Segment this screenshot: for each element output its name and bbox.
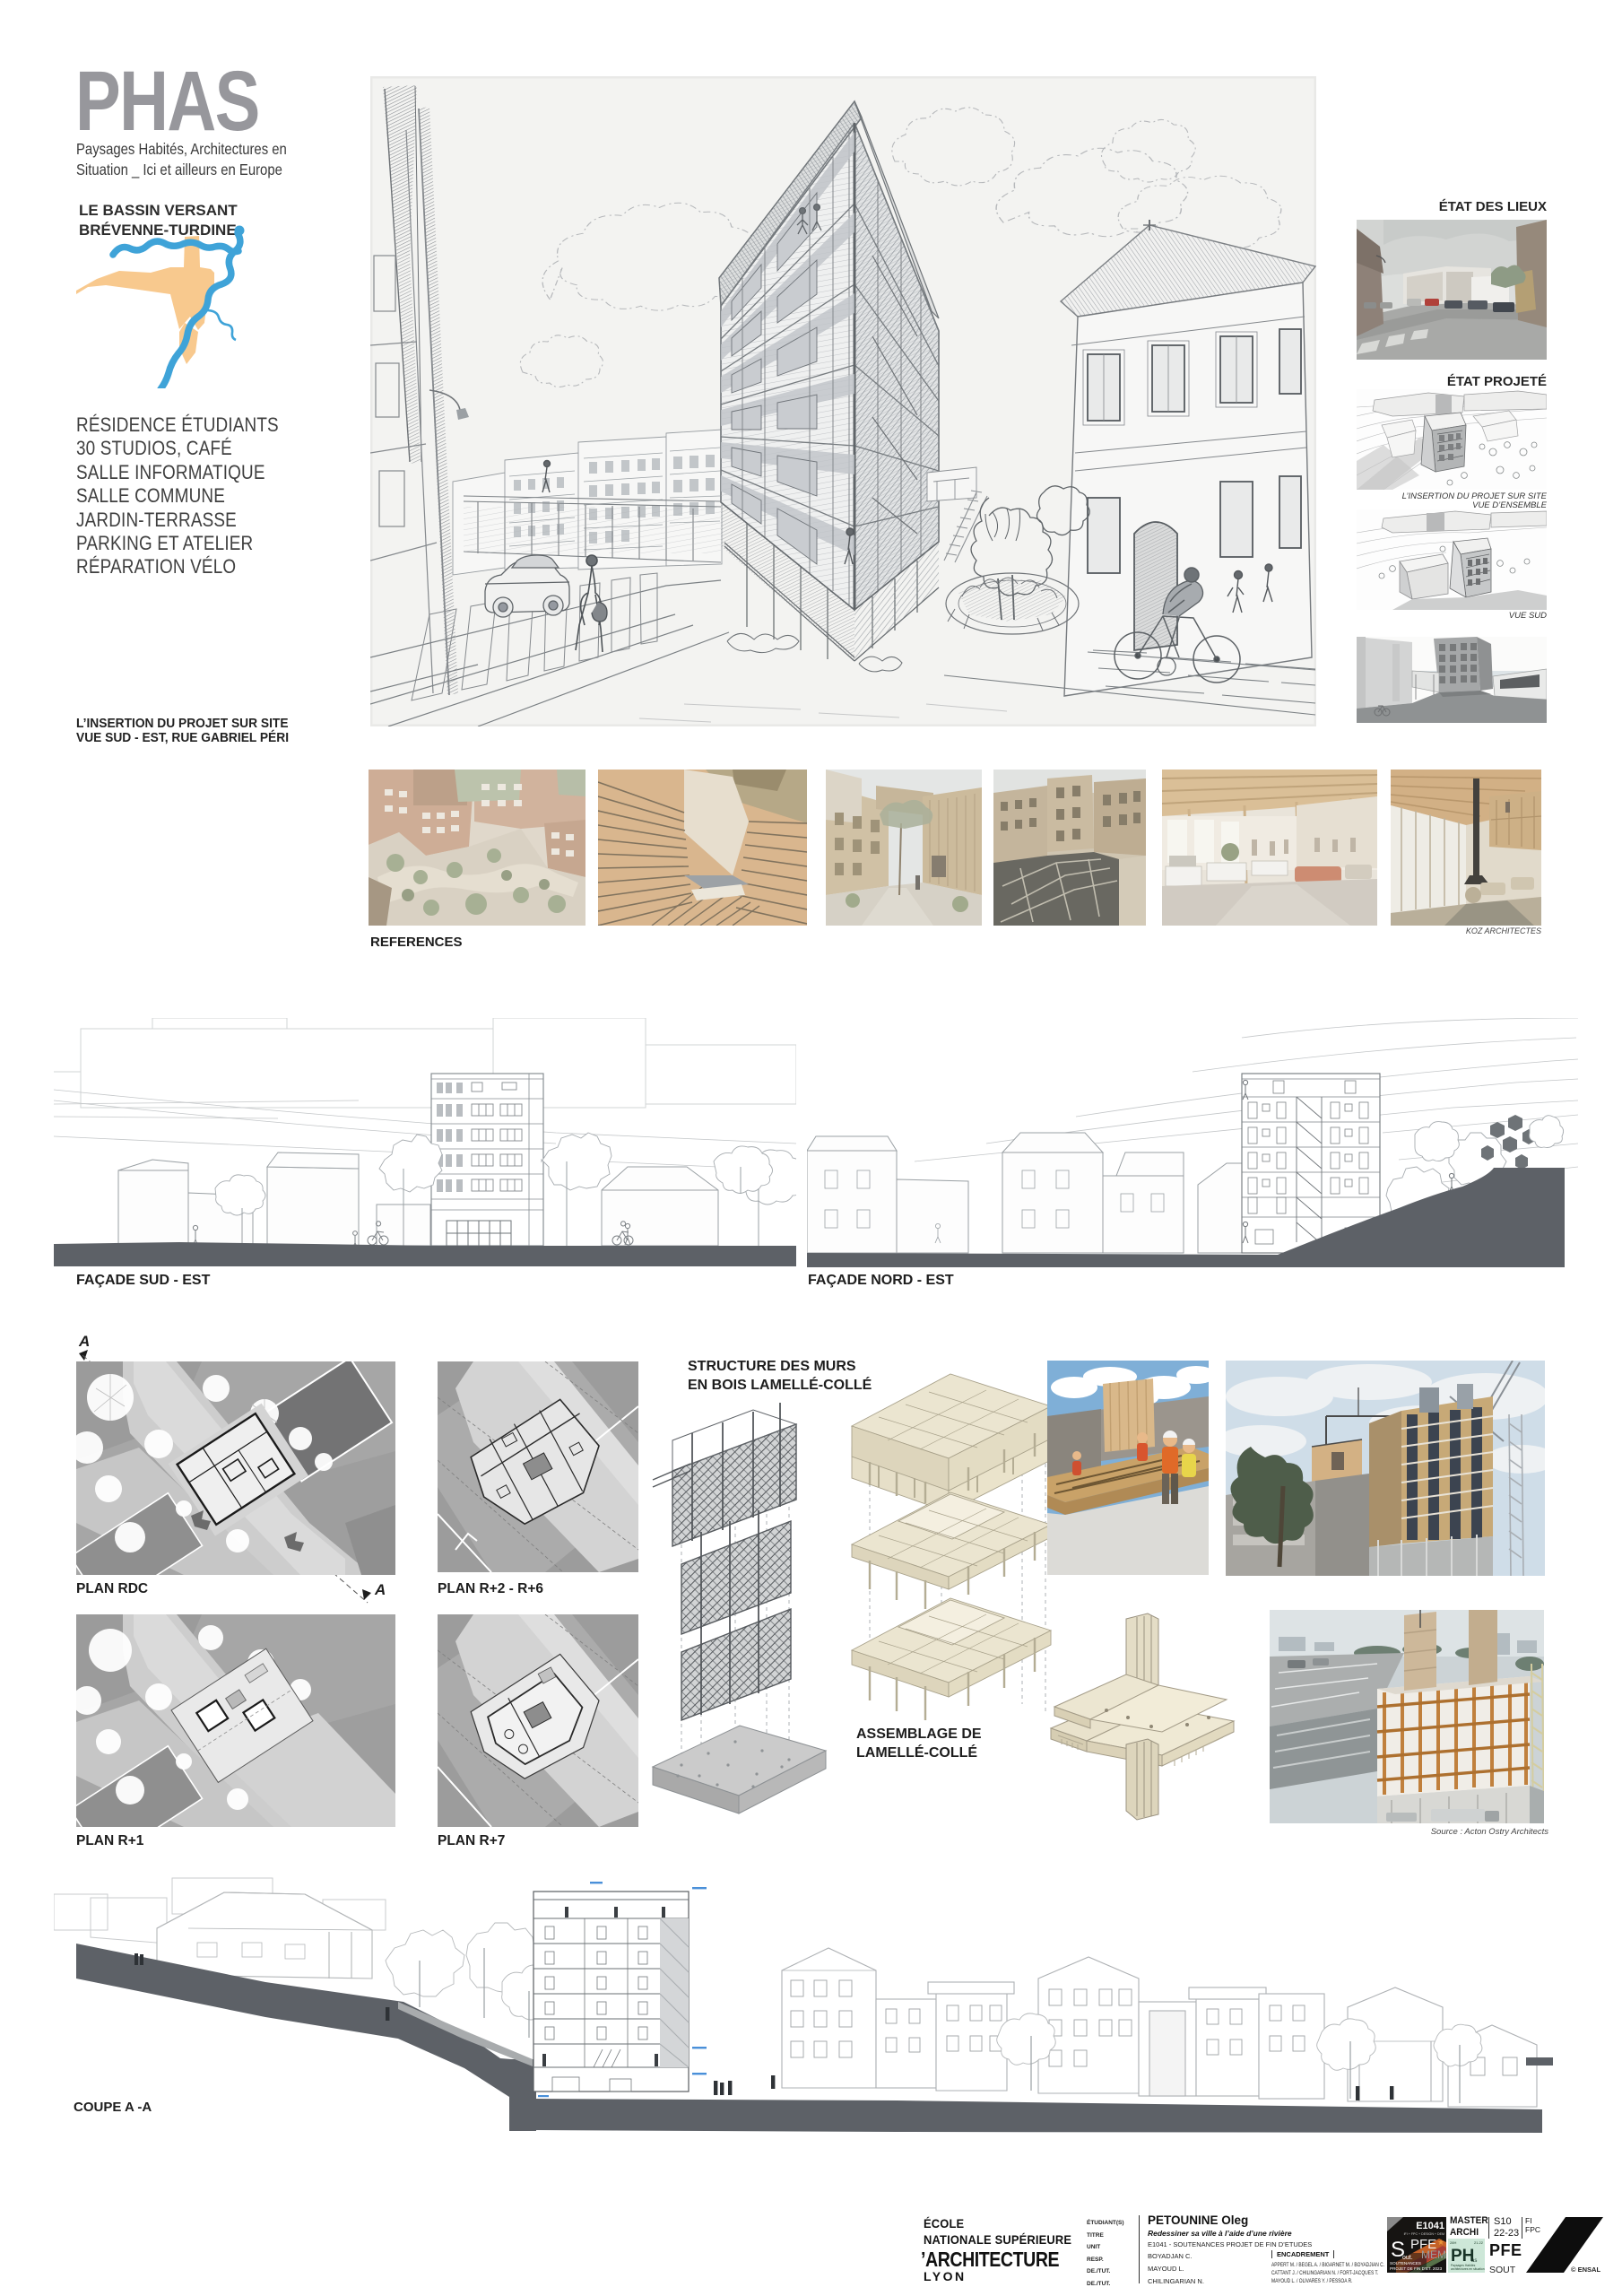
svg-text:out.: out. xyxy=(1402,2255,1413,2261)
svg-text:21.22: 21.22 xyxy=(1474,2240,1484,2245)
svg-text:E1041: E1041 xyxy=(1416,2221,1444,2231)
svg-text:SOUTENANCES: SOUTENANCES xyxy=(1390,2261,1421,2266)
svg-text:28H: 28H xyxy=(1450,2240,1456,2245)
svg-text:PROJET DE FIN D’ET. 2023: PROJET DE FIN D’ET. 2023 xyxy=(1390,2266,1443,2271)
svg-text:MEM: MEM xyxy=(1421,2248,1446,2261)
svg-text:★: ★ xyxy=(1437,2238,1444,2247)
svg-text:IFI + FPC + DESIGN + DEM: IFI + FPC + DESIGN + DEM xyxy=(1404,2232,1444,2236)
svg-text:architectures en situation...: architectures en situation... xyxy=(1451,2267,1485,2271)
